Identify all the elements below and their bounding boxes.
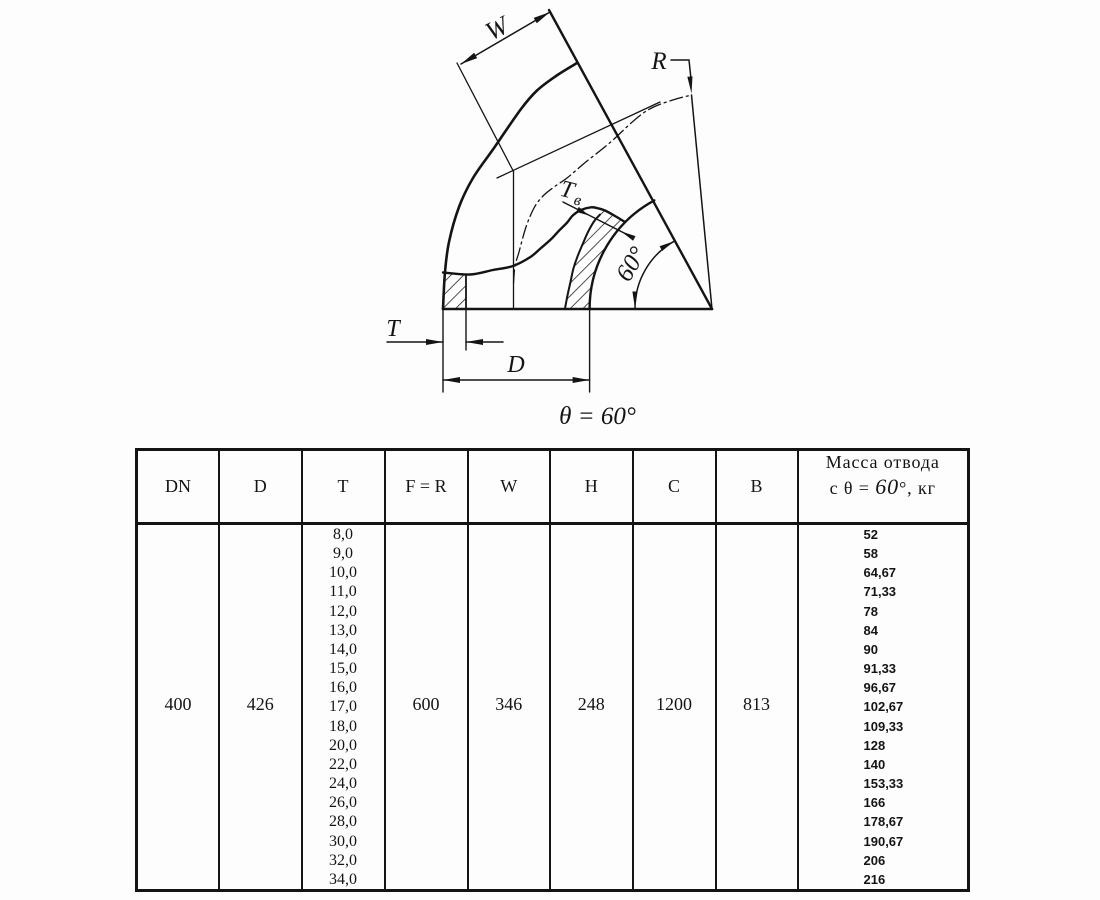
svg-text:R: R <box>650 48 666 75</box>
svg-text:W: W <box>481 10 516 47</box>
svg-text:в: в <box>572 192 583 210</box>
svg-text:θ = 60°: θ = 60° <box>559 403 636 430</box>
svg-text:D: D <box>506 352 524 378</box>
svg-text:60°: 60° <box>611 242 652 286</box>
svg-text:T: T <box>386 316 401 342</box>
